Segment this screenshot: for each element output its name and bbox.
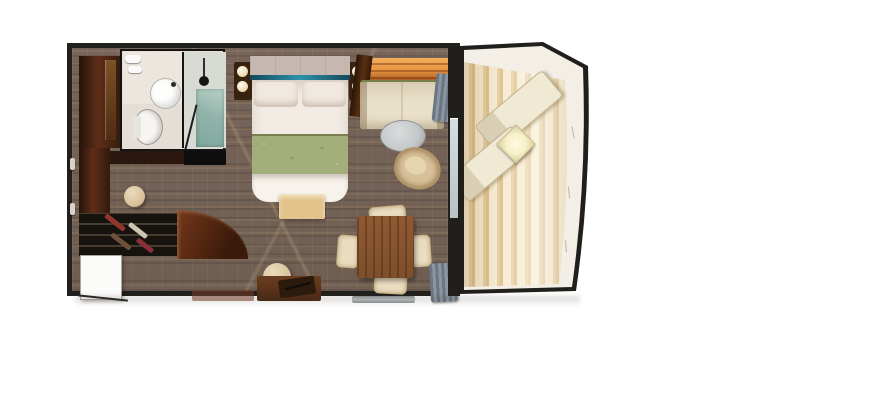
wall-handle <box>70 158 75 170</box>
shower-arm <box>203 58 205 78</box>
shower-head <box>199 76 209 86</box>
faucet <box>171 82 176 87</box>
toilet <box>134 109 163 145</box>
dining-table <box>357 216 414 278</box>
floorplan-canvas <box>0 0 881 400</box>
wardrobe-cabinet <box>79 56 122 148</box>
wardrobe-mirror <box>105 60 116 140</box>
shoe <box>128 222 148 239</box>
railing-joint <box>571 127 574 139</box>
shoe <box>110 232 132 251</box>
curved-cabinet <box>177 210 248 259</box>
railing-joint <box>568 186 570 198</box>
vanity-cabinet <box>79 148 110 216</box>
bed <box>250 56 350 202</box>
shoe <box>136 237 155 253</box>
sink <box>150 78 181 109</box>
headboard-accent-bar <box>250 75 350 80</box>
bathroom <box>120 49 225 151</box>
headboard-wall <box>250 56 350 77</box>
shoe <box>104 213 126 232</box>
towel <box>128 66 142 73</box>
cabin-room <box>67 43 460 296</box>
lamp <box>237 66 249 96</box>
pillow <box>254 82 298 107</box>
shoe-closet <box>79 213 178 256</box>
vanity-stool <box>124 186 145 207</box>
bed-runner <box>252 134 348 177</box>
towel <box>125 55 141 63</box>
vanity-counter <box>110 151 184 164</box>
floorplan <box>65 40 595 306</box>
shower <box>182 52 226 148</box>
bed-bench <box>279 194 325 219</box>
toilet-tank <box>133 116 141 138</box>
plan-shadow <box>75 296 580 308</box>
wall-handle <box>70 203 75 215</box>
pillow <box>302 82 346 107</box>
railing-joint <box>565 240 567 252</box>
balcony-furniture <box>455 40 595 302</box>
tv-console <box>184 149 226 165</box>
entry-door <box>80 255 122 300</box>
shower-glass <box>196 89 224 147</box>
balcony <box>455 40 595 302</box>
